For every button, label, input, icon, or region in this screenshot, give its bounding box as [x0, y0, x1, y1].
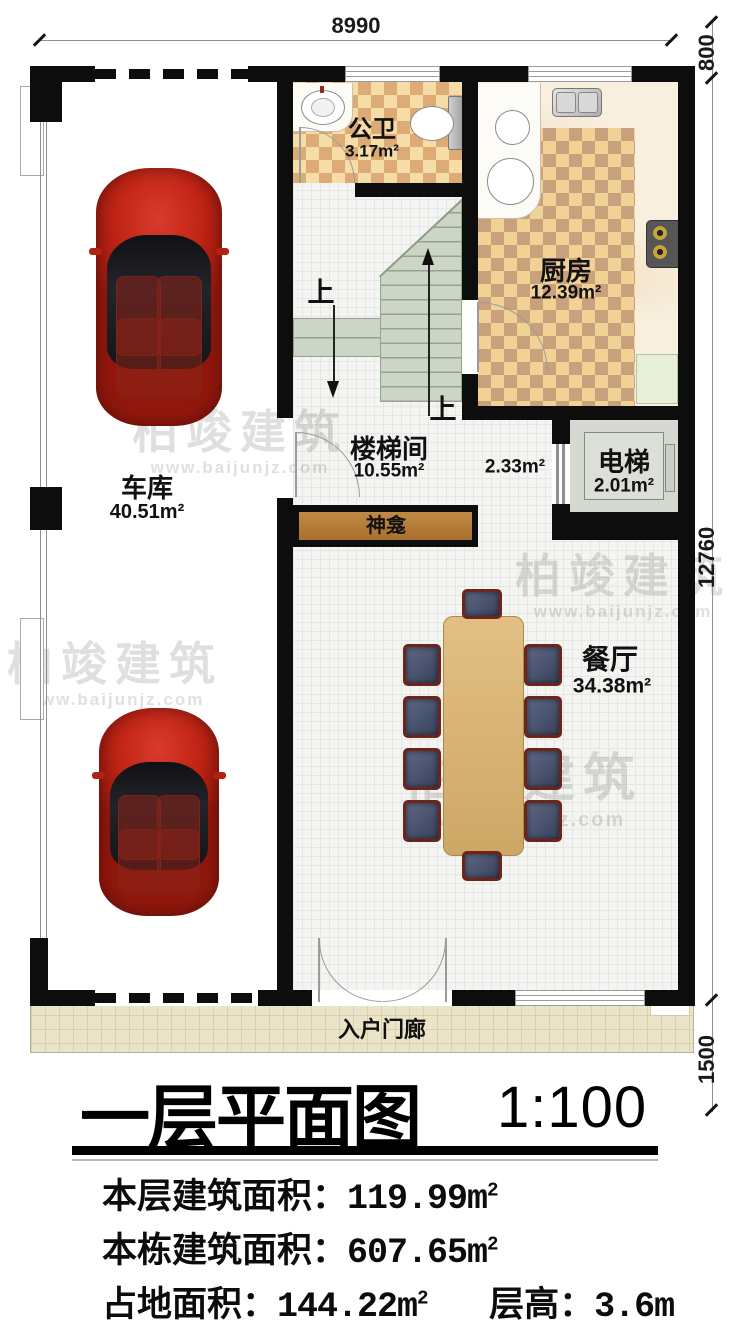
wall-corner-top-left: [30, 66, 62, 122]
dim-right-800: 800: [694, 24, 720, 82]
room-label-elevator: 电梯: [598, 449, 650, 475]
room-label-kitchen: 厨房: [540, 258, 592, 284]
window-kitchen: [528, 66, 632, 82]
kitchen-door-leaf: [477, 302, 479, 372]
wall-elevator-bottom: [552, 512, 695, 540]
kitchen-counter-basin-large: [487, 158, 534, 205]
dining-chair: [524, 800, 562, 842]
toilet-icon: [410, 106, 454, 141]
sheet-scale: 1:100: [497, 1074, 647, 1141]
dining-chair: [403, 800, 441, 842]
stair-up-label-2: 上: [430, 397, 457, 424]
elevator-rail: [665, 444, 675, 492]
room-label-bathroom: 公卫: [348, 118, 396, 142]
car-mirror: [213, 772, 226, 779]
kitchen-mat: [636, 354, 678, 404]
room-label-garage: 车库: [121, 475, 173, 501]
stair-arrow-up-line: [428, 264, 430, 416]
dining-chair: [524, 696, 562, 738]
room-area-bathroom: 3.17m²: [345, 143, 399, 160]
title-underline-thin: [72, 1159, 658, 1161]
bathroom-door-leaf: [299, 127, 301, 183]
stove-burner: [653, 245, 667, 259]
dining-chair: [524, 748, 562, 790]
wall-garage-separator-lower: [277, 498, 293, 990]
car-seat: [157, 829, 200, 893]
window-bathroom: [345, 66, 440, 82]
sink-basin-right: [578, 92, 598, 113]
floor-plan-sheet: 8990 800 12760 1500 柏竣建筑 www.baijunjz.co…: [0, 0, 750, 1336]
stair-up-label-1: 上: [308, 280, 335, 307]
car-mirror: [89, 248, 102, 255]
car-seat: [157, 318, 202, 397]
dining-table: [443, 616, 524, 856]
kitchen-door-opening: [462, 300, 478, 374]
room-area-elevator: 2.01m²: [594, 477, 654, 496]
stove-burner: [653, 226, 667, 240]
entry-door-leaf: [445, 938, 447, 1002]
window-dining: [515, 990, 645, 1006]
car-mirror: [92, 772, 105, 779]
elevator-door-line: [556, 444, 559, 504]
sink-basin-left: [556, 92, 576, 113]
room-area-garage: 40.51m²: [110, 502, 185, 522]
entry-door-opening: [312, 990, 452, 1006]
wall-garage-separator-upper: [277, 82, 293, 418]
stair-arrow-down-line: [333, 305, 335, 381]
room-area-stairwell: 10.55m²: [354, 462, 425, 481]
dining-chair: [403, 748, 441, 790]
bathroom-sink-basin: [311, 98, 335, 117]
car-seat: [116, 318, 161, 397]
room-label-stairwell: 楼梯间: [350, 436, 428, 462]
dimension-line-top: [40, 40, 672, 41]
car-top-icon: [96, 168, 222, 426]
elevator-door-line: [562, 444, 565, 504]
wall-corner-bottom-left: [30, 938, 48, 1006]
garage-window-line: [46, 84, 47, 990]
dining-chair: [524, 644, 562, 686]
kitchen-counter-basin-small: [495, 110, 530, 145]
stair-arrow-up-icon: [422, 248, 434, 265]
dining-chair: [462, 589, 502, 619]
title-underline: [72, 1146, 658, 1155]
room-area-kitchen: 12.39m²: [531, 284, 602, 303]
wall-bathroom-bottom: [355, 183, 462, 197]
garage-window-line: [40, 84, 41, 990]
porch-label: 入户门廊: [338, 1019, 426, 1041]
stair-flight-lower: [293, 318, 381, 357]
stat-building-area: 本栋建筑面积：607.65m2: [102, 1222, 498, 1273]
car-seat: [118, 829, 161, 893]
entry-door-leaf: [318, 938, 320, 1002]
garage-door-dashed-bottom: [95, 993, 258, 1003]
room-area-dining: 34.38m²: [573, 676, 651, 697]
wall-pier-left: [30, 487, 62, 530]
dim-top-8990: 8990: [332, 13, 381, 39]
dim-right-12760: 12760: [694, 492, 720, 622]
car-top-icon: [99, 708, 219, 916]
car-mirror: [216, 248, 229, 255]
wall-bath-kitchen: [462, 82, 478, 300]
garage-hall-door-leaf: [295, 432, 297, 497]
wall-kitchen-bottom: [462, 406, 695, 420]
dining-chair: [462, 851, 502, 881]
stat-footprint-height: 占地面积：144.22m2 层高：3.6m: [102, 1276, 674, 1327]
shrine-label: 神龛: [366, 516, 406, 536]
room-label-dining: 餐厅: [582, 646, 638, 674]
garage-door-dashed-top: [95, 69, 248, 79]
stat-floor-area: 本层建筑面积：119.99m2: [102, 1168, 498, 1219]
dining-chair: [403, 696, 441, 738]
elevator-door-gap: [552, 444, 570, 504]
dining-chair: [403, 644, 441, 686]
faucet-icon: [320, 86, 324, 93]
hall-area-label: 2.33m²: [485, 458, 545, 477]
dim-right-1500: 1500: [694, 1014, 720, 1106]
stair-arrow-down-icon: [327, 381, 339, 398]
